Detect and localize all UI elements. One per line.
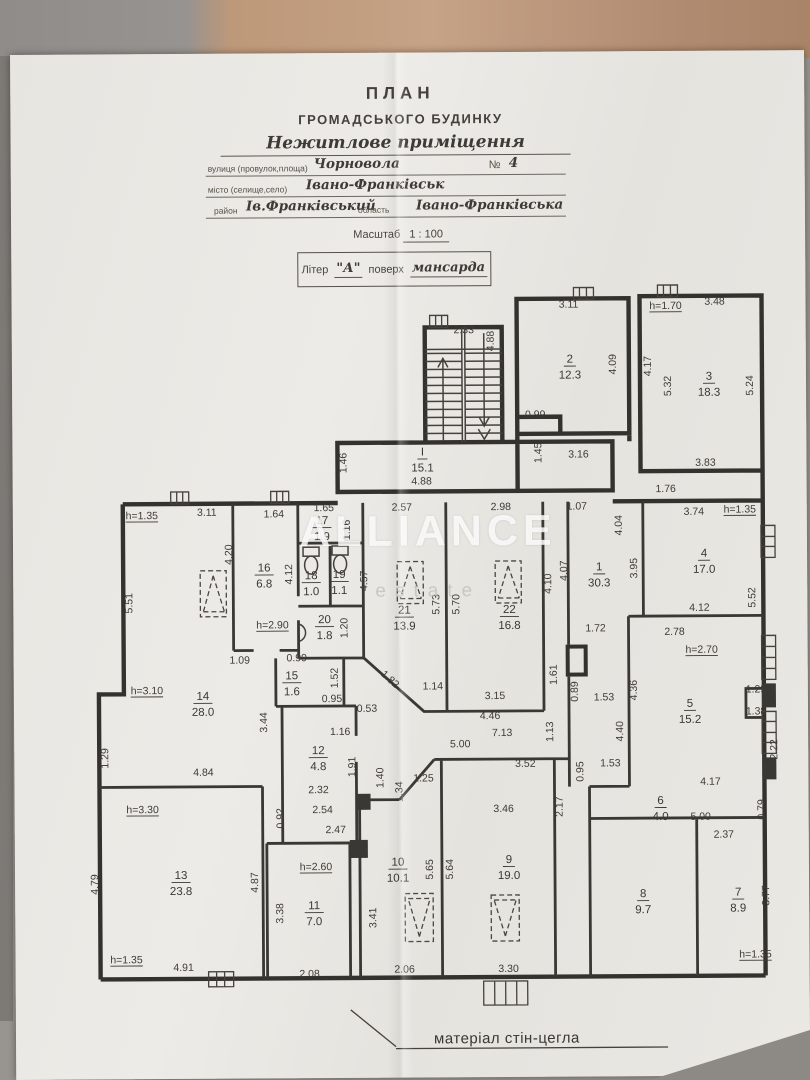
dimension-label: 1.25 <box>413 772 434 784</box>
room-number: 13 <box>175 870 188 882</box>
dimension-label: 4.12 <box>283 564 295 585</box>
dimension-label: 1.16 <box>330 726 351 738</box>
dimension-label: 1.29 <box>746 683 767 695</box>
room-number: 11 <box>308 900 320 912</box>
room-number: 3 <box>706 371 712 383</box>
dimension-label: 0.95 <box>322 693 343 705</box>
material-note: матеріал стін-цегла <box>351 1008 668 1049</box>
room-area: 7.0 <box>306 916 322 928</box>
dimension-label: 5.00 <box>450 738 471 750</box>
photo-background-top <box>0 0 810 58</box>
dimension-label: 2.78 <box>664 626 685 638</box>
room-area: 17.0 <box>693 564 715 576</box>
room-number: 2 <box>567 354 573 366</box>
dimension-label: 2.32 <box>308 784 329 796</box>
floor-plan-drawing: 2.334.883.114.09h=1.703.484.175.325.243.… <box>10 50 810 1080</box>
material-note-text: матеріал стін-цегла <box>434 1030 580 1048</box>
dimension-label: 4.09 <box>607 354 619 375</box>
room-area: 1.6 <box>284 686 300 698</box>
room-area: 23.8 <box>170 886 192 898</box>
room-area: 1.1 <box>331 585 347 597</box>
room-area: 1.0 <box>303 586 319 598</box>
scanned-floor-plan-photo: ПЛАН ГРОМАДСЬКОГО БУДИНКУ Нежитлове прим… <box>0 0 810 1080</box>
dimension-label: 4.57 <box>358 570 370 591</box>
dimension-label: 2.06 <box>394 964 415 976</box>
dimension-label: 3.48 <box>704 296 725 308</box>
dimension-label: 1.29 <box>99 748 111 769</box>
wall-pier <box>357 794 371 810</box>
room-number: 6 <box>657 795 663 807</box>
dimension-label: 3.41 <box>367 907 379 928</box>
room-number: 8 <box>640 888 646 900</box>
wall-pier <box>350 840 368 858</box>
dimension-label: 2.47 <box>325 824 346 836</box>
dimension-label: 4.17 <box>642 356 654 377</box>
room-number: 7 <box>735 887 741 899</box>
dimension-label: 1.40 <box>374 767 386 788</box>
dimension-label: 5.51 <box>123 593 135 614</box>
room-area: 1.8 <box>317 630 333 642</box>
room-area: 15.2 <box>679 714 701 726</box>
room-number: 1 <box>596 561 602 573</box>
dimension-label: 3.77 <box>760 885 772 906</box>
room-area: 30.3 <box>588 577 610 589</box>
room-area: 19.0 <box>498 870 520 882</box>
room-number: 9 <box>506 854 512 866</box>
dimension-label: 3.44 <box>258 712 270 733</box>
room-number: 4 <box>701 548 708 560</box>
room-number: 21 <box>398 605 411 617</box>
dimension-label: 0.95 <box>574 761 586 782</box>
dimension-label: h=3.30 <box>126 804 159 816</box>
dimension-label: 1.07 <box>567 500 588 512</box>
dimension-label: 0.92 <box>275 808 287 829</box>
dimension-label: h=2.70 <box>685 644 718 656</box>
dimension-label: h=1.35 <box>126 510 159 522</box>
dimension-label: 5.64 <box>444 859 456 880</box>
room-area: 28.0 <box>192 707 214 719</box>
dimension-label: 4.46 <box>480 710 501 722</box>
room-number: 10 <box>392 857 405 869</box>
plan-labels: 2.334.883.114.09h=1.703.484.175.325.243.… <box>85 295 781 981</box>
dimension-label: 1.52 <box>329 668 341 689</box>
dimension-label: 3.83 <box>695 457 716 469</box>
dimension-label: 4.40 <box>614 721 626 742</box>
dimension-label: 5.32 <box>662 376 674 397</box>
dimension-label: 3.46 <box>493 803 514 815</box>
dimension-label: 3.74 <box>684 506 705 518</box>
interior-walls <box>98 500 766 979</box>
dimension-label: 1.65 <box>314 502 335 514</box>
room-number: 5 <box>687 698 693 710</box>
dimension-label: 1.91 <box>346 757 358 778</box>
dimension-label: 2.57 <box>392 502 413 514</box>
dimension-label: 4.17 <box>700 776 721 788</box>
dimension-label: 1.09 <box>229 655 250 667</box>
room-area: 1.9 <box>314 531 330 543</box>
dimension-label: h=1.70 <box>649 300 682 312</box>
dimension-label: 4.07 <box>558 560 570 581</box>
document-paper: ПЛАН ГРОМАДСЬКОГО БУДИНКУ Нежитлове прим… <box>10 50 810 1080</box>
dimension-label: 2.98 <box>491 501 512 513</box>
dimension-label: 4.20 <box>223 544 235 565</box>
dimension-label: 1.14 <box>423 680 444 692</box>
dimension-label: 1.64 <box>264 508 285 520</box>
dimension-label: 3.95 <box>628 558 640 579</box>
dimension-label: h=1.35 <box>724 503 757 515</box>
dimension-label: 4.91 <box>173 962 194 974</box>
room-area: 13.9 <box>393 621 415 633</box>
room-number: 16 <box>258 562 271 574</box>
dimension-label: 0.99 <box>286 652 307 664</box>
dimension-label: 4.04 <box>613 515 625 536</box>
dimension-label: 5.52 <box>746 587 758 608</box>
dimension-label: 3.11 <box>559 299 579 311</box>
dimension-label: 4.88 <box>485 331 497 352</box>
dimension-label: 2.37 <box>714 829 735 841</box>
room-number: 18 <box>305 570 318 582</box>
dimension-label: 2.17 <box>554 796 566 817</box>
room-area: 12.3 <box>559 370 581 382</box>
dimension-label: 1.46 <box>337 453 349 474</box>
room-area: 10.1 <box>387 873 409 885</box>
dimension-label: 2.54 <box>312 804 333 816</box>
dimension-label: 4.88 <box>411 475 432 487</box>
dimension-label: h=3.10 <box>131 685 164 697</box>
dimension-label: 4.87 <box>249 872 261 893</box>
dimension-label: 0.99 <box>525 409 546 421</box>
dimension-label: 1.20 <box>338 618 350 639</box>
room-area: 9.7 <box>635 904 651 916</box>
dimension-label: 5.00 <box>690 811 711 823</box>
dimension-label: 3.30 <box>498 963 519 975</box>
dimension-label: 0.89 <box>569 681 581 702</box>
dimension-label: 1.72 <box>585 622 606 634</box>
dimension-label: h=2.60 <box>300 861 333 873</box>
dimension-label: 1.53 <box>594 691 615 703</box>
dimension-label: 3.52 <box>515 758 536 770</box>
room-area: 16.8 <box>498 620 520 632</box>
room-area: 18.3 <box>698 387 720 399</box>
room-area: 8.9 <box>730 903 746 915</box>
dimension-label: 4.84 <box>193 767 214 779</box>
dimension-label: h=1.35 <box>110 954 143 966</box>
wall-pier <box>568 646 586 674</box>
dimension-label: 4.79 <box>89 874 101 895</box>
dimension-label: 0.53 <box>357 703 378 715</box>
dimension-label: 1.76 <box>655 483 676 495</box>
sink-icon <box>299 624 305 641</box>
dimension-label: 3.38 <box>274 903 286 924</box>
toilet-tank-icon <box>303 547 319 556</box>
room-number: 20 <box>318 614 331 626</box>
room-number: 14 <box>196 691 209 703</box>
dimension-label: 3.16 <box>568 448 589 460</box>
dimension-label: 7.13 <box>492 727 513 739</box>
dimension-label: 5.65 <box>424 859 436 880</box>
dimension-label: 5.73 <box>430 594 442 615</box>
dimension-label: 4.12 <box>689 602 710 614</box>
dimension-label: 2.22 <box>768 739 780 760</box>
dimension-label: 4.36 <box>628 680 640 701</box>
dimension-label: h=1.35 <box>739 948 772 960</box>
room-area: 6.8 <box>256 578 272 590</box>
dimension-label: 2.33 <box>453 324 474 336</box>
dimension-label: 1.61 <box>548 664 560 685</box>
dimension-label: 3.15 <box>485 690 506 702</box>
room-number: 12 <box>312 745 325 757</box>
room-area: 4.8 <box>310 761 326 773</box>
dimension-label: 0.79 <box>756 799 768 820</box>
room-area: 15.1 <box>411 462 433 474</box>
toilet-tank-icon <box>332 546 348 555</box>
dimension-label: 1.13 <box>544 721 556 742</box>
room-number: I <box>421 446 424 458</box>
dimension-label: 1.38 <box>746 705 767 717</box>
dimension-label: 5.70 <box>450 594 462 615</box>
dimension-label: 2.08 <box>299 968 320 980</box>
room-number: 22 <box>503 604 516 616</box>
dimension-label: 5.24 <box>744 375 756 396</box>
dimension-label: 1.16 <box>341 520 353 541</box>
dimension-label: 3.11 <box>197 507 217 519</box>
dimension-label: 1.45 <box>532 442 544 463</box>
room-area: 4.0 <box>653 811 669 823</box>
room-number: 19 <box>333 569 346 581</box>
dimension-label: 1.53 <box>600 757 621 769</box>
dimension-label: 4.10 <box>542 573 554 594</box>
wall-pier <box>762 757 776 779</box>
dimension-label: 1.34 <box>393 781 405 802</box>
room-number: 17 <box>315 515 328 527</box>
dimension-label: h=2.90 <box>256 619 289 631</box>
room-number: 15 <box>285 670 298 682</box>
